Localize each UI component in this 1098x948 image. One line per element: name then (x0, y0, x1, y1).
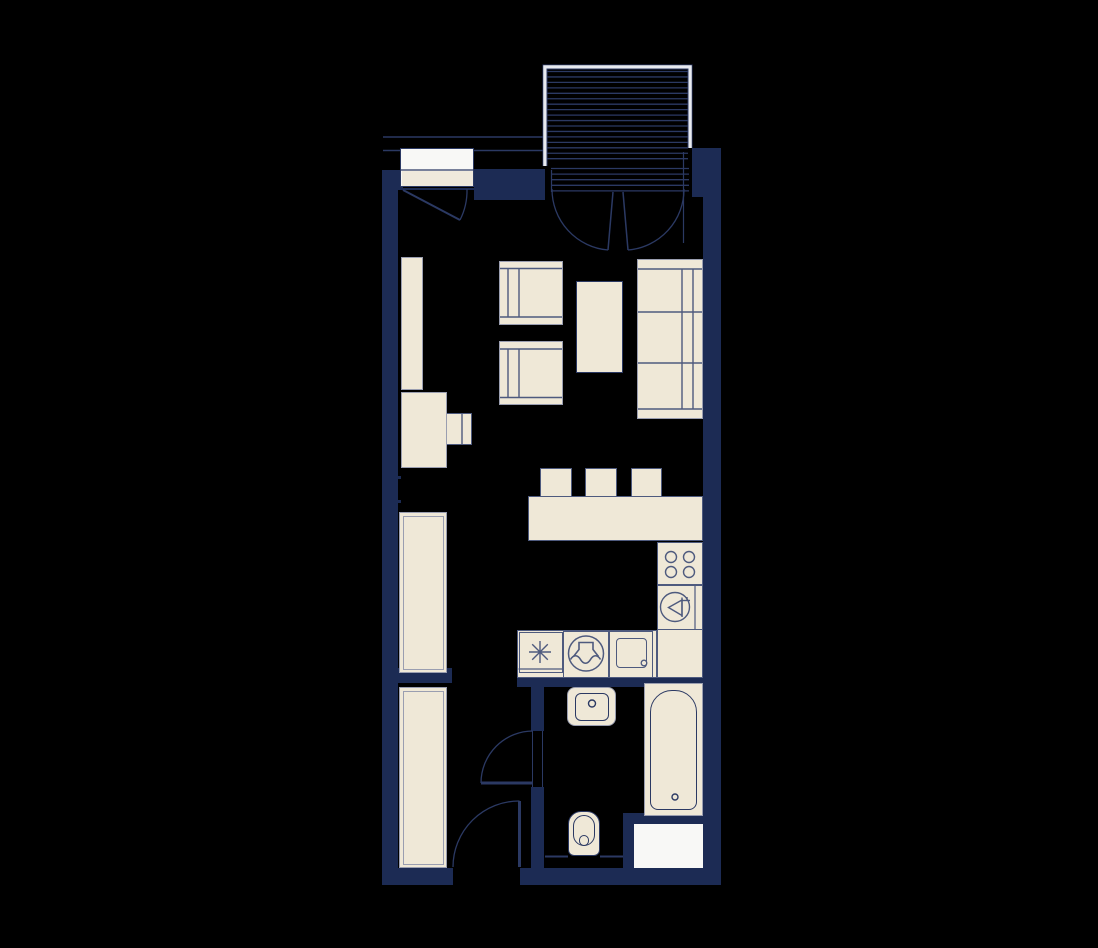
french-door-leaf-right (623, 192, 628, 250)
hob-burner-3 (666, 567, 677, 578)
bath-sink-drain (589, 700, 596, 707)
washer-glyph-hood (574, 643, 599, 657)
dw-glyph-funnel (669, 600, 683, 616)
hob-burner-2 (684, 552, 695, 563)
hob-burner-4 (684, 567, 695, 578)
kitchen-sink-drain (641, 660, 647, 666)
hob-burner-1 (666, 552, 677, 563)
bath-door-arc (481, 731, 533, 783)
entry-door-arc (460, 189, 467, 220)
washer-glyph-wave (571, 656, 601, 664)
floor-plan-stage (0, 0, 1098, 948)
entry-door-leaf (403, 190, 460, 220)
french-door-arc-right (628, 189, 684, 250)
bathtub-drain (672, 794, 678, 800)
washer-circle (569, 636, 604, 671)
plan-linework (0, 0, 1098, 948)
hall-door-arc (453, 801, 520, 867)
dishwasher-circle (661, 593, 690, 622)
floor-plan (0, 0, 1098, 948)
balcony-railing-inner (547, 69, 688, 166)
french-door-leaf-left (608, 192, 613, 250)
french-door-arc-left (552, 189, 608, 250)
